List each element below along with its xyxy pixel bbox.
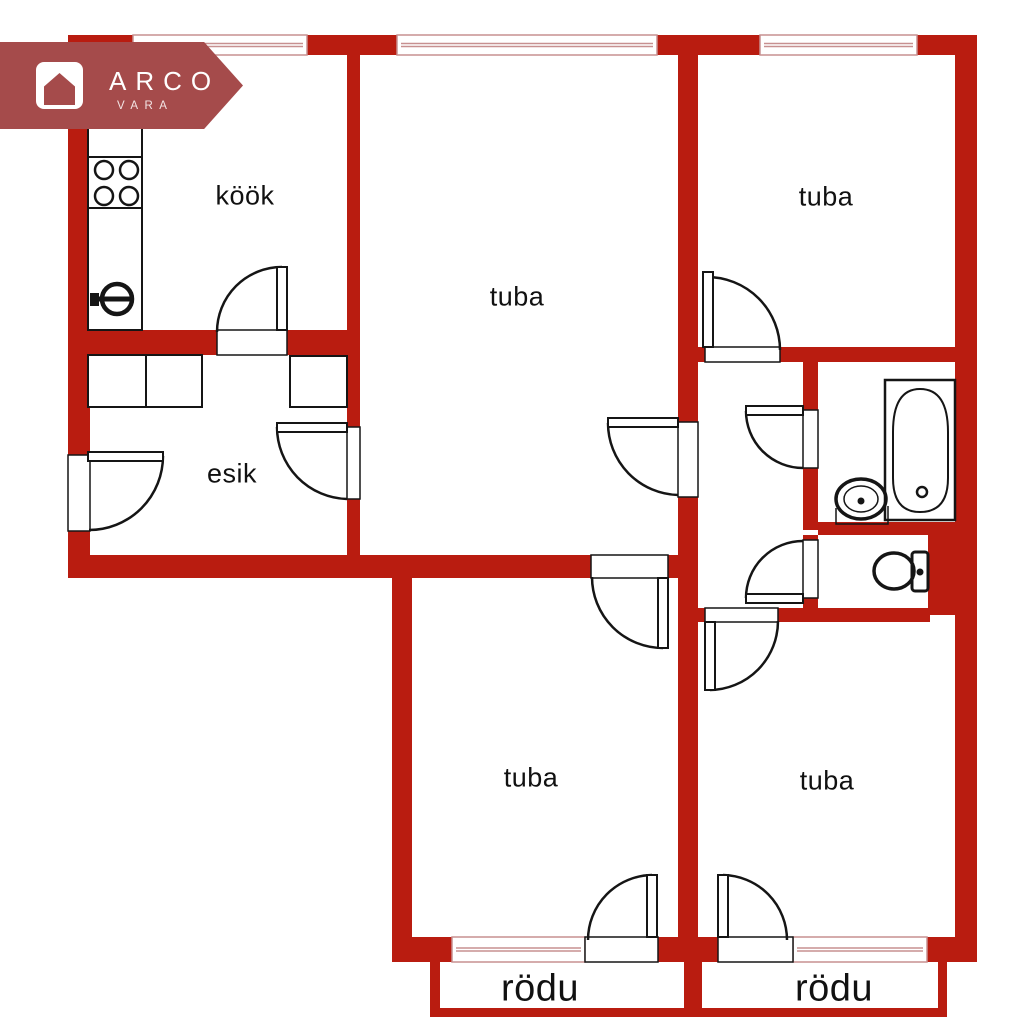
- bathroom-sink-icon: [836, 479, 888, 524]
- topright-room-door-leaf: [703, 272, 713, 347]
- bottomleft-room-door-opening: [591, 555, 668, 578]
- logo-brand-text: ARCO: [109, 66, 220, 97]
- floor-plan: köök tuba tuba esik tuba tuba rödu rödu …: [0, 0, 1024, 1024]
- balcony-divider-wall: [684, 960, 702, 1017]
- window-bottomright-room: [793, 937, 927, 962]
- wall-wc-shaft: [928, 535, 955, 615]
- room-label-esik: esik: [207, 459, 257, 490]
- entrance-door-opening: [68, 455, 90, 531]
- wall-esik-bottom: [68, 555, 678, 578]
- room-label-tuba-top-right: tuba: [799, 182, 854, 213]
- bathroom-door-leaf: [746, 406, 803, 415]
- bottomleft-room-door-leaf: [658, 578, 668, 648]
- room-label-tuba-bottom-right: tuba: [800, 766, 855, 797]
- window-topright-room: [760, 35, 917, 55]
- balcony-left-door-opening: [585, 937, 658, 962]
- room-label-rodu-left: rödu: [501, 968, 579, 1011]
- wardrobe-right: [290, 356, 347, 407]
- balcony-right-door-arc: [723, 875, 787, 940]
- floor-plan-drawing: [0, 0, 1024, 1024]
- window-bottomleft-room: [452, 937, 585, 962]
- logo-sub-text: VARA: [117, 100, 173, 112]
- balcony-right-door-opening: [718, 937, 793, 962]
- toilet-icon: [874, 552, 928, 591]
- window-livingroom: [397, 35, 657, 55]
- livingroom-corridor-door-arc: [608, 423, 678, 495]
- wc-door-opening: [803, 540, 818, 598]
- balcony-left-door-arc: [588, 875, 652, 940]
- house-icon: [36, 62, 83, 109]
- bathroom-door-arc: [746, 411, 803, 468]
- kitchen-door-opening: [217, 330, 287, 355]
- room-label-tuba-center: tuba: [490, 282, 545, 313]
- balcony-left-door-leaf: [647, 875, 657, 937]
- balcony-right-door-leaf: [718, 875, 728, 937]
- esik-livingroom-door-leaf: [277, 423, 347, 432]
- bathtub-icon: [885, 380, 955, 520]
- topright-room-door-arc: [707, 277, 780, 350]
- room-label-tuba-bottom-left: tuba: [504, 763, 559, 794]
- wall-right: [955, 35, 977, 962]
- bottomright-room-door-opening: [705, 608, 778, 622]
- room-label-kook: köök: [215, 181, 274, 212]
- wall-center-divider: [678, 35, 698, 962]
- wall-bottomleft-room-left: [392, 555, 412, 962]
- balcony-right-wall: [938, 960, 947, 1017]
- livingroom-corridor-door-opening: [678, 422, 698, 497]
- bathroom-door-opening: [803, 410, 818, 468]
- wc-door-leaf: [746, 594, 803, 603]
- bottomright-room-door-leaf: [705, 622, 715, 690]
- topright-room-door-opening: [705, 347, 780, 362]
- wc-door-arc: [746, 541, 803, 598]
- entrance-door-arc: [89, 456, 163, 530]
- esik-livingroom-door-opening: [347, 427, 360, 499]
- arco-vara-logo-banner: ARCO VARA: [0, 42, 243, 129]
- bottomleft-room-door-arc: [592, 577, 663, 648]
- livingroom-corridor-door-leaf: [608, 418, 678, 427]
- room-label-rodu-right: rödu: [795, 968, 873, 1011]
- wardrobes: [88, 355, 347, 407]
- kitchen-door-leaf: [277, 267, 287, 330]
- bottomright-room-door-arc: [710, 621, 778, 690]
- entrance-door-leaf: [88, 452, 163, 461]
- esik-livingroom-door-arc: [277, 427, 347, 499]
- kitchen-door-arc: [217, 267, 282, 332]
